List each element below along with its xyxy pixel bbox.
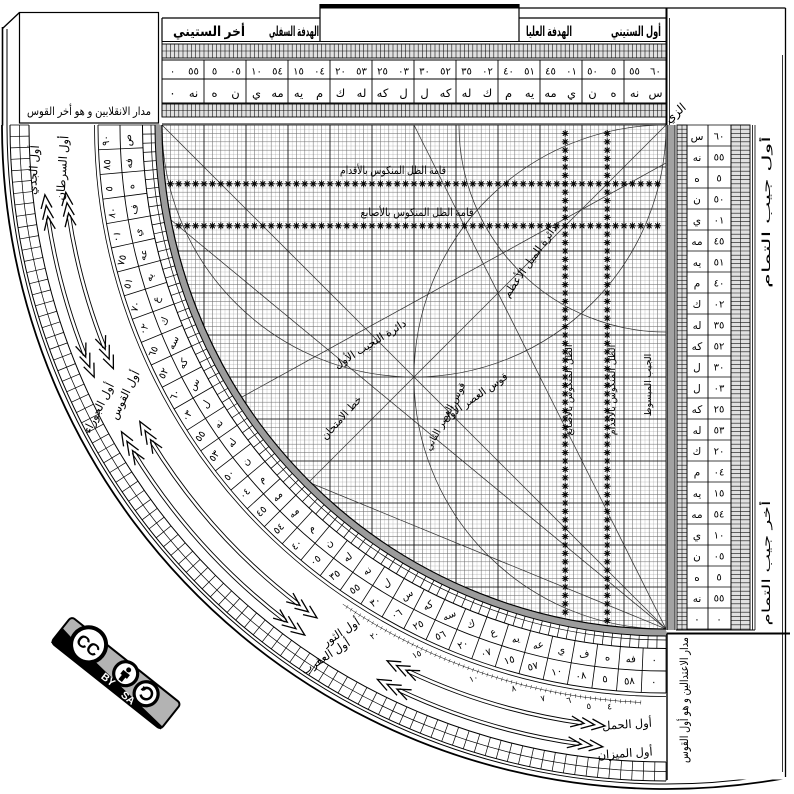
svg-text:٥٢: ٥٢ — [440, 67, 451, 78]
svg-text:٠: ٠ — [651, 677, 657, 688]
svg-text:٦٠: ٦٠ — [714, 132, 725, 143]
svg-text:٥٥: ٥٥ — [714, 594, 725, 605]
svg-text:٢٠: ٢٠ — [335, 67, 346, 78]
svg-text:الهدفة العليا: الهدفة العليا — [526, 24, 572, 39]
svg-text:نه: نه — [630, 88, 639, 100]
svg-text:ص: ص — [123, 134, 134, 146]
svg-text:ي: ي — [693, 215, 701, 227]
svg-text:ه: ه — [211, 88, 217, 100]
svg-text:ك: ك — [693, 299, 702, 311]
svg-text:٣٠: ٣٠ — [419, 67, 430, 78]
svg-text:ك: ك — [693, 446, 702, 458]
svg-text:ك: ك — [483, 88, 492, 100]
svg-text:٨٥: ٨٥ — [102, 159, 114, 170]
svg-text:٣٥: ٣٥ — [714, 321, 725, 332]
svg-text:فه: فه — [124, 158, 136, 169]
svg-text:٥: ٥ — [716, 174, 721, 185]
svg-text:٠٢: ٠٢ — [714, 300, 725, 311]
svg-text:٤: ٤ — [607, 701, 613, 711]
svg-text:٠١: ٠١ — [714, 216, 725, 227]
svg-text:له: له — [462, 88, 472, 100]
svg-text:نه: نه — [693, 593, 702, 605]
svg-text:٠٣: ٠٣ — [398, 67, 409, 78]
svg-text:فه: فه — [625, 654, 636, 666]
svg-text:كه: كه — [692, 341, 703, 353]
svg-text:١٥: ١٥ — [293, 67, 304, 78]
svg-text:قامة الظل المنكوس بالأصابع: قامة الظل المنكوس بالأصابع — [361, 205, 474, 219]
svg-text:نه: نه — [189, 88, 198, 100]
svg-text:٤٥: ٤٥ — [714, 237, 725, 248]
svg-text:ي: ي — [567, 88, 576, 100]
svg-text:٥٣: ٥٣ — [714, 426, 725, 437]
svg-text:ل: ل — [693, 362, 701, 374]
svg-text:ه: ه — [610, 88, 616, 100]
svg-text:١٠: ١٠ — [551, 666, 564, 679]
svg-text:٥٥: ٥٥ — [629, 67, 640, 78]
svg-text:٥٤: ٥٤ — [714, 510, 725, 521]
svg-text:مدار الانقلابين و هو أخر القوس: مدار الانقلابين و هو أخر القوس — [27, 103, 151, 119]
svg-text:٥٥: ٥٥ — [714, 153, 725, 164]
svg-text:٢٠: ٢٠ — [714, 447, 725, 458]
svg-text:ل: ل — [693, 383, 701, 395]
svg-text:٥٠: ٥٠ — [587, 67, 598, 78]
svg-text:الظل المنكوس بالأقدام: الظل المنكوس بالأقدام — [606, 345, 618, 435]
svg-text:٥١: ٥١ — [714, 258, 725, 269]
svg-text:٥: ٥ — [611, 67, 616, 78]
svg-text:ف: ف — [578, 649, 590, 661]
svg-text:٥٠: ٥٠ — [714, 195, 725, 206]
svg-text:مه: مه — [691, 509, 702, 521]
svg-text:٥١: ٥١ — [524, 67, 535, 78]
svg-text:له: له — [693, 320, 702, 332]
svg-text:له: له — [693, 425, 702, 437]
svg-text:٠١: ٠١ — [566, 67, 577, 78]
svg-text:۰: ۰ — [694, 614, 700, 626]
svg-text:س: س — [691, 131, 704, 143]
svg-text:مه: مه — [691, 236, 702, 248]
svg-text:م: م — [505, 88, 512, 100]
svg-text:٠٤: ٠٤ — [314, 67, 325, 78]
svg-text:ن: ن — [231, 88, 239, 100]
svg-text:٠: ٠ — [170, 67, 175, 78]
svg-text:ه: ه — [694, 173, 700, 185]
svg-text:ف: ف — [129, 204, 141, 216]
svg-text:٠٥: ٠٥ — [230, 67, 241, 78]
svg-text:ن: ن — [588, 88, 596, 100]
svg-text:٨٠: ٨٠ — [107, 207, 120, 219]
svg-text:الظل المنكوس بالأصابع: الظل المنكوس بالأصابع — [563, 344, 575, 435]
svg-text:٢٥: ٢٥ — [377, 67, 388, 78]
svg-text:٦٠: ٦٠ — [650, 67, 661, 78]
svg-text:مدار الاعتدالين و هو أول القوس: مدار الاعتدالين و هو أول القوس — [676, 637, 692, 763]
svg-text:٠٥: ٠٥ — [714, 552, 725, 563]
svg-text:٤٥: ٤٥ — [545, 67, 556, 78]
svg-text:٥٨: ٥٨ — [624, 676, 636, 688]
svg-text:١٠: ١٠ — [714, 531, 725, 542]
svg-text:٣٠: ٣٠ — [714, 363, 725, 374]
svg-text:له: له — [357, 88, 367, 100]
svg-text:٤٠: ٤٠ — [714, 279, 725, 290]
svg-text:١٠: ١٠ — [251, 67, 262, 78]
svg-text:م: م — [694, 467, 701, 479]
svg-text:كه: كه — [377, 88, 389, 100]
svg-text:كه: كه — [692, 404, 703, 416]
svg-text:٥٥: ٥٥ — [188, 67, 199, 78]
svg-text:ل: ل — [420, 88, 428, 100]
svg-text:۰: ۰ — [169, 88, 175, 100]
svg-text:أول جيب التمام: أول جيب التمام — [759, 136, 773, 288]
svg-text:كه: كه — [440, 88, 452, 100]
svg-text:٤٠: ٤٠ — [503, 67, 514, 78]
svg-text:١٥: ١٥ — [714, 489, 725, 500]
svg-text:الجيب المبسوط: الجيب المبسوط — [643, 354, 654, 417]
svg-text:٣٥: ٣٥ — [461, 67, 472, 78]
svg-text:٢٥: ٢٥ — [714, 405, 725, 416]
svg-text:۰: ۰ — [651, 655, 657, 666]
svg-text:يه: يه — [693, 257, 702, 269]
svg-text:يه: يه — [525, 88, 534, 100]
svg-text:الهدفة السفلي: الهدفة السفلي — [269, 24, 319, 39]
svg-text:ك: ك — [336, 88, 345, 100]
svg-text:٠٢: ٠٢ — [482, 67, 493, 78]
svg-text:٠٣: ٠٣ — [714, 384, 725, 395]
svg-text:قامة الظل المنكوس بالأقدام: قامة الظل المنكوس بالأقدام — [340, 163, 446, 177]
svg-text:أخر جيب التمام: أخر جيب التمام — [759, 501, 773, 626]
svg-text:س: س — [648, 88, 662, 101]
svg-text:٥٣: ٥٣ — [356, 67, 367, 78]
svg-text:٠٤: ٠٤ — [714, 468, 725, 479]
svg-text:يه: يه — [294, 88, 303, 100]
svg-text:مه: مه — [544, 88, 556, 100]
svg-text:٩٠: ٩٠ — [101, 135, 112, 146]
svg-text:م: م — [694, 278, 701, 290]
svg-text:نه: نه — [693, 152, 702, 164]
svg-text:أول الستيني: أول الستيني — [611, 23, 661, 39]
svg-text:ل: ل — [399, 88, 407, 100]
svg-text:م: م — [316, 88, 323, 100]
svg-text:ه: ه — [694, 572, 700, 584]
svg-text:ي: ي — [693, 530, 701, 542]
svg-text:٠: ٠ — [716, 615, 721, 626]
svg-text:٥: ٥ — [212, 67, 217, 78]
svg-text:٥٤: ٥٤ — [272, 67, 283, 78]
svg-text:ن: ن — [693, 194, 701, 206]
svg-text:ي: ي — [252, 88, 261, 100]
svg-text:٥: ٥ — [716, 573, 721, 584]
svg-text:٠١: ٠١ — [111, 230, 124, 243]
svg-text:أخر الستيني: أخر الستيني — [173, 23, 245, 39]
svg-text:ن: ن — [693, 551, 701, 563]
svg-text:يه: يه — [693, 488, 702, 500]
svg-text:٥٢: ٥٢ — [714, 342, 725, 353]
svg-text:مه: مه — [271, 88, 283, 100]
